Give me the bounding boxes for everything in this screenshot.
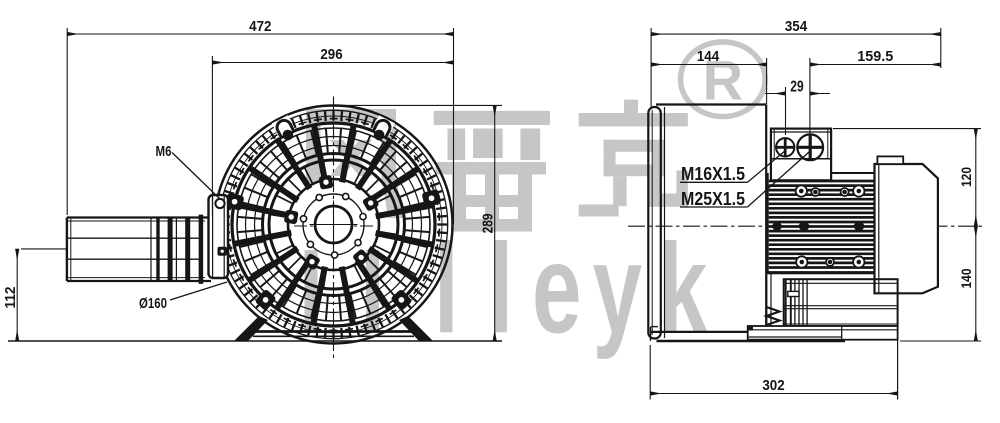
svg-text:144: 144	[697, 49, 719, 65]
svg-text:M6: M6	[156, 143, 172, 160]
svg-text:472: 472	[249, 19, 271, 35]
svg-text:k: k	[658, 219, 708, 360]
svg-text:120: 120	[958, 167, 974, 187]
svg-text:M16X1.5: M16X1.5	[681, 164, 745, 184]
svg-text:296: 296	[320, 47, 342, 63]
svg-text:l: l	[489, 219, 514, 360]
svg-text:354: 354	[785, 19, 807, 35]
svg-text:e: e	[532, 219, 581, 360]
svg-text:289: 289	[481, 213, 497, 233]
svg-text:29: 29	[790, 79, 803, 96]
svg-text:M25X1.5: M25X1.5	[681, 189, 745, 209]
svg-text:302: 302	[762, 378, 784, 394]
svg-text:112: 112	[3, 287, 19, 309]
svg-text:159.5: 159.5	[857, 49, 893, 65]
svg-text:Ø160: Ø160	[139, 295, 167, 312]
svg-text:140: 140	[958, 268, 974, 288]
svg-text:y: y	[593, 219, 642, 360]
